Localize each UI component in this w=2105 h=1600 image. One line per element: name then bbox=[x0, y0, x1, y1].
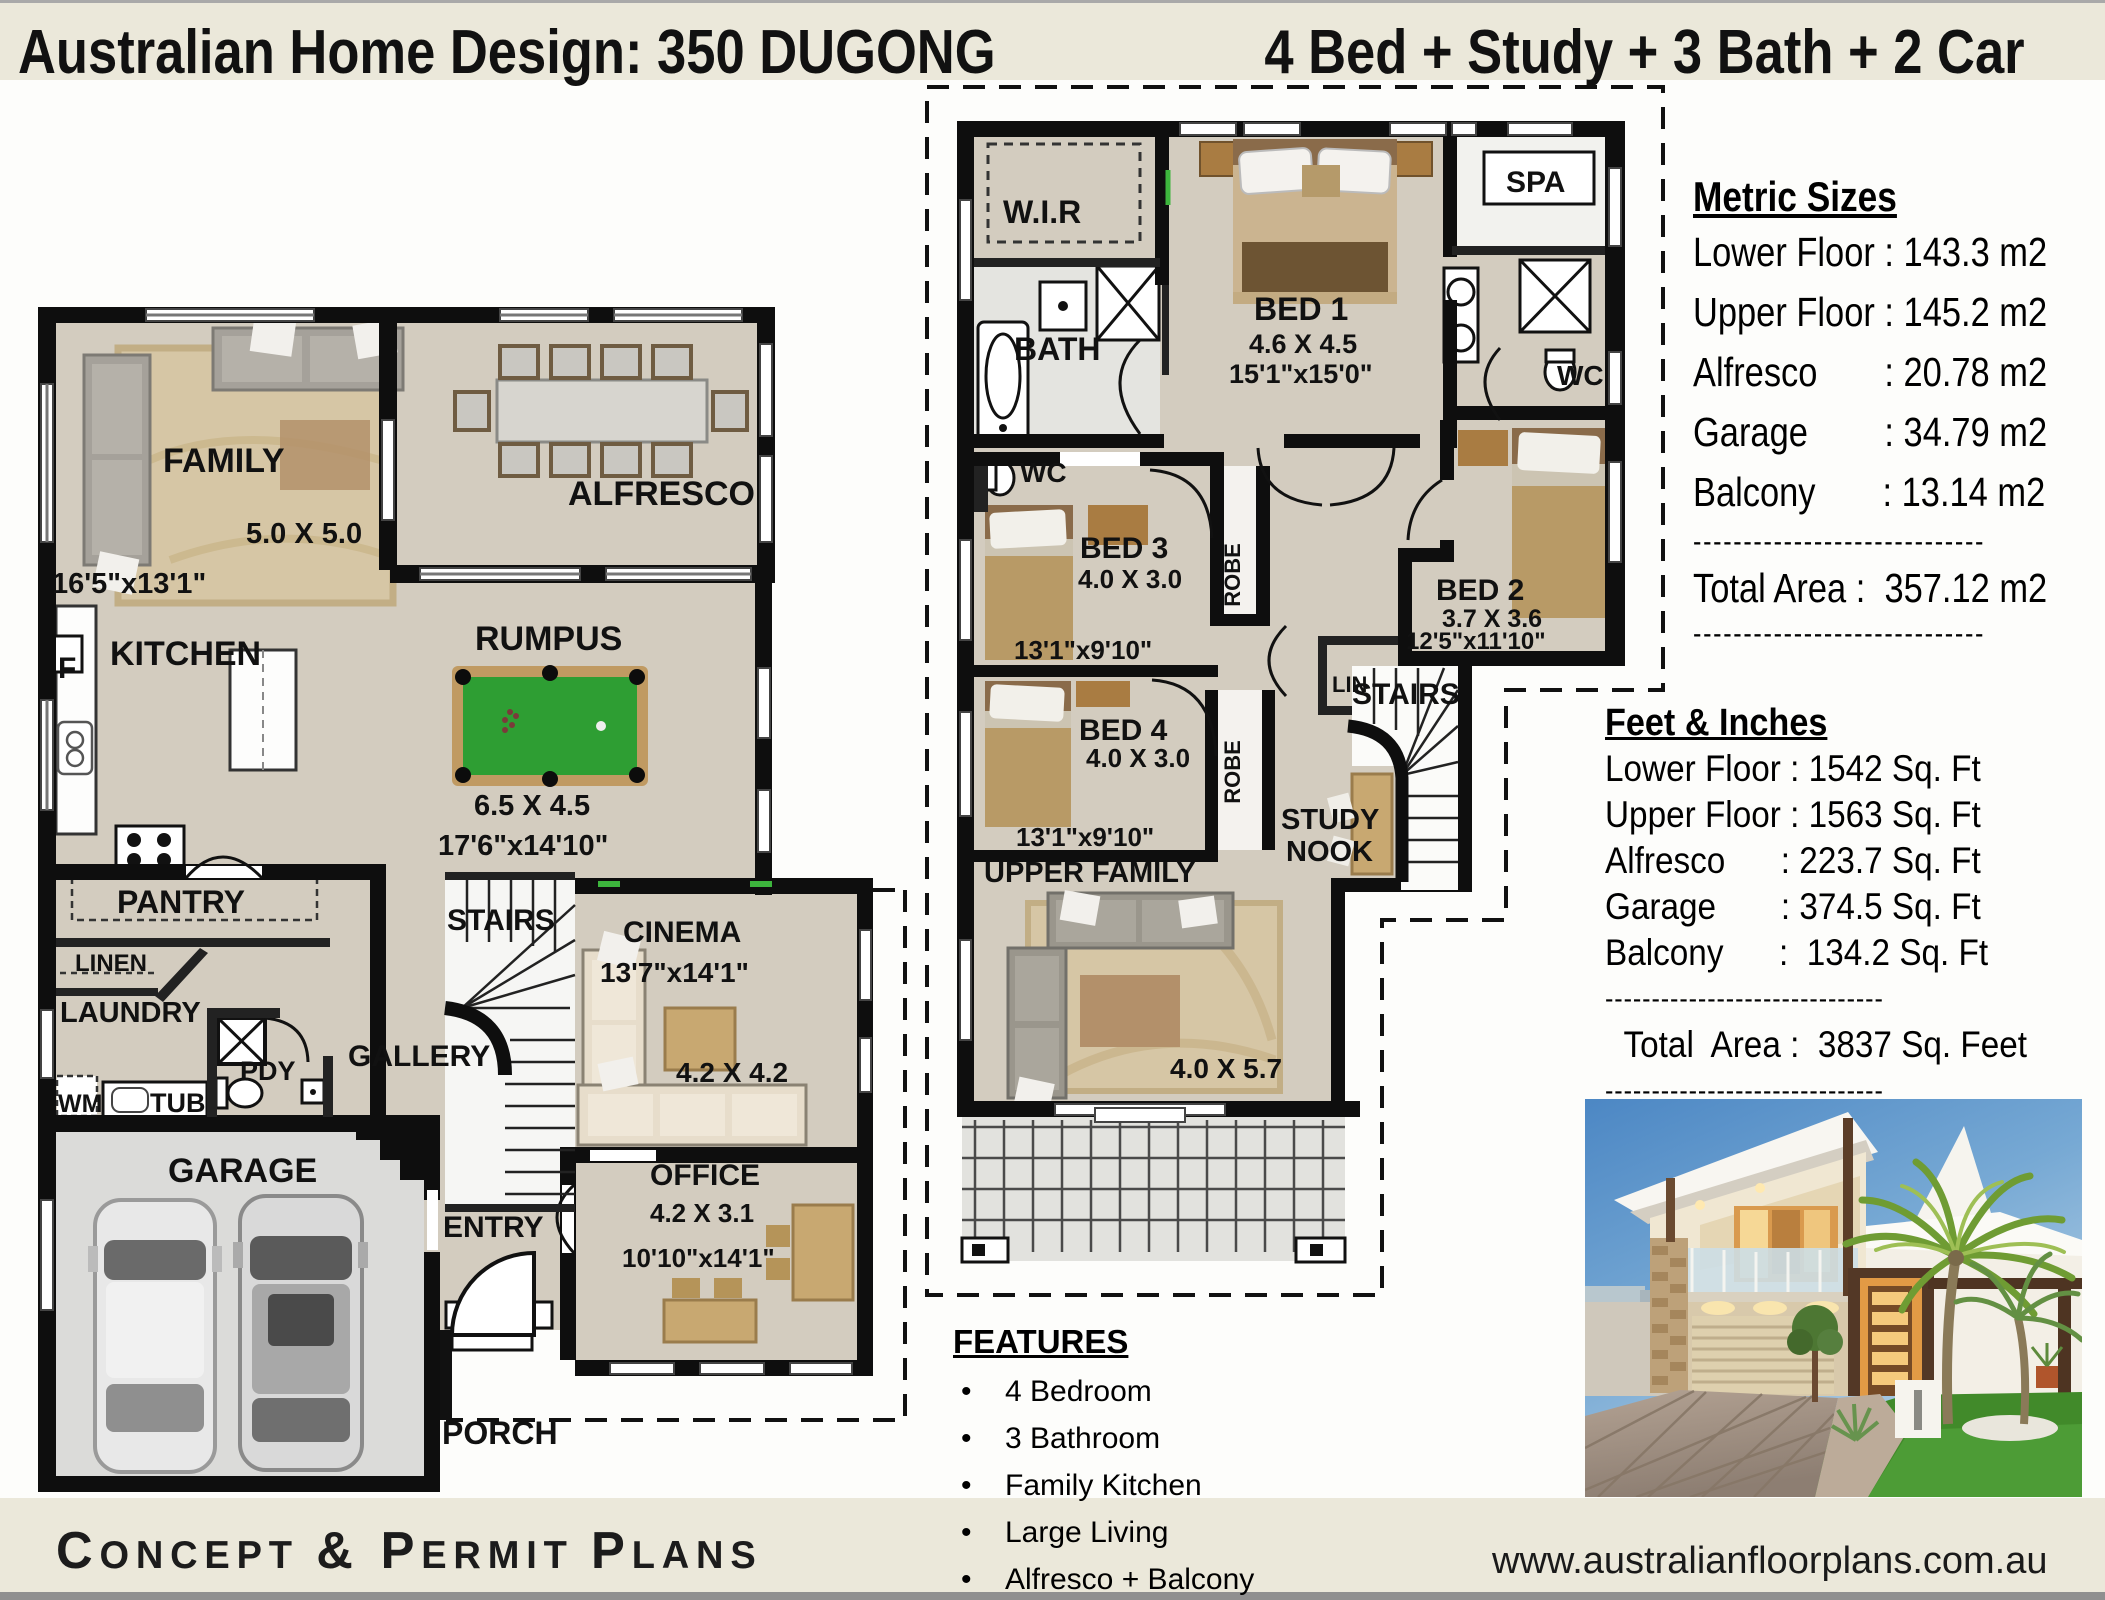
svg-text:NOOK: NOOK bbox=[1286, 836, 1373, 868]
svg-text:BED 3: BED 3 bbox=[1080, 532, 1168, 565]
svg-text:4.0 X 5.7: 4.0 X 5.7 bbox=[1170, 1053, 1282, 1084]
svg-text:6.5 X 4.5: 6.5 X 4.5 bbox=[474, 790, 590, 822]
svg-text:STAIRS: STAIRS bbox=[447, 904, 555, 937]
svg-text:GALLERY: GALLERY bbox=[348, 1040, 490, 1073]
svg-text:ENTRY: ENTRY bbox=[443, 1211, 544, 1244]
svg-text:4.2 X 3.1: 4.2 X 3.1 bbox=[650, 1198, 754, 1228]
svg-text:4.0 X 3.0: 4.0 X 3.0 bbox=[1086, 743, 1190, 773]
svg-text:OFFICE: OFFICE bbox=[650, 1159, 760, 1192]
svg-text:12'5"x11'10": 12'5"x11'10" bbox=[1406, 628, 1546, 655]
svg-text:BED 1: BED 1 bbox=[1254, 291, 1348, 327]
svg-text:STAIRS: STAIRS bbox=[1352, 678, 1460, 711]
svg-text:UPPER FAMILY: UPPER FAMILY bbox=[984, 857, 1196, 889]
svg-text:PORCH: PORCH bbox=[442, 1415, 558, 1451]
svg-text:17'6"x14'10": 17'6"x14'10" bbox=[438, 830, 608, 862]
svg-text:WM: WM bbox=[58, 1090, 102, 1118]
svg-text:CINEMA: CINEMA bbox=[623, 916, 741, 949]
svg-text:PDY: PDY bbox=[240, 1056, 296, 1086]
svg-text:ROBE: ROBE bbox=[1220, 740, 1245, 804]
svg-text:W.I.R: W.I.R bbox=[1003, 194, 1081, 230]
svg-text:10'10"x14'1": 10'10"x14'1" bbox=[622, 1243, 775, 1273]
svg-text:13'1"x9'10": 13'1"x9'10" bbox=[1014, 635, 1152, 665]
svg-text:5.0 X 5.0: 5.0 X 5.0 bbox=[246, 518, 362, 550]
svg-text:16'5"x13'1": 16'5"x13'1" bbox=[52, 568, 206, 600]
svg-text:F: F bbox=[58, 652, 76, 685]
svg-text:GARAGE: GARAGE bbox=[168, 1152, 317, 1190]
svg-text:TUB: TUB bbox=[150, 1088, 206, 1118]
svg-text:SPA: SPA bbox=[1506, 166, 1565, 199]
svg-text:WC: WC bbox=[1020, 457, 1067, 488]
svg-text:ROBE: ROBE bbox=[1220, 543, 1245, 607]
svg-text:STUDY: STUDY bbox=[1281, 804, 1379, 836]
svg-text:LINEN: LINEN bbox=[75, 950, 147, 977]
svg-text:15'1"x15'0": 15'1"x15'0" bbox=[1229, 359, 1373, 389]
svg-text:FAMILY: FAMILY bbox=[163, 442, 285, 480]
svg-text:BED 2: BED 2 bbox=[1436, 574, 1524, 607]
svg-text:WC: WC bbox=[1557, 360, 1604, 391]
svg-text:RUMPUS: RUMPUS bbox=[475, 620, 622, 658]
svg-text:13'1"x9'10": 13'1"x9'10" bbox=[1016, 822, 1154, 852]
svg-text:LAUNDRY: LAUNDRY bbox=[60, 997, 201, 1029]
svg-text:4.0 X 3.0: 4.0 X 3.0 bbox=[1078, 564, 1182, 594]
svg-text:13'7"x14'1": 13'7"x14'1" bbox=[600, 957, 749, 988]
svg-text:BATH: BATH bbox=[1014, 331, 1101, 367]
svg-text:ALFRESCO: ALFRESCO bbox=[568, 475, 755, 513]
svg-text:4.2 X 4.2: 4.2 X 4.2 bbox=[676, 1057, 788, 1088]
svg-text:KITCHEN: KITCHEN bbox=[110, 635, 261, 673]
svg-text:PANTRY: PANTRY bbox=[117, 884, 245, 920]
svg-text:4.6 X 4.5: 4.6 X 4.5 bbox=[1249, 329, 1357, 359]
